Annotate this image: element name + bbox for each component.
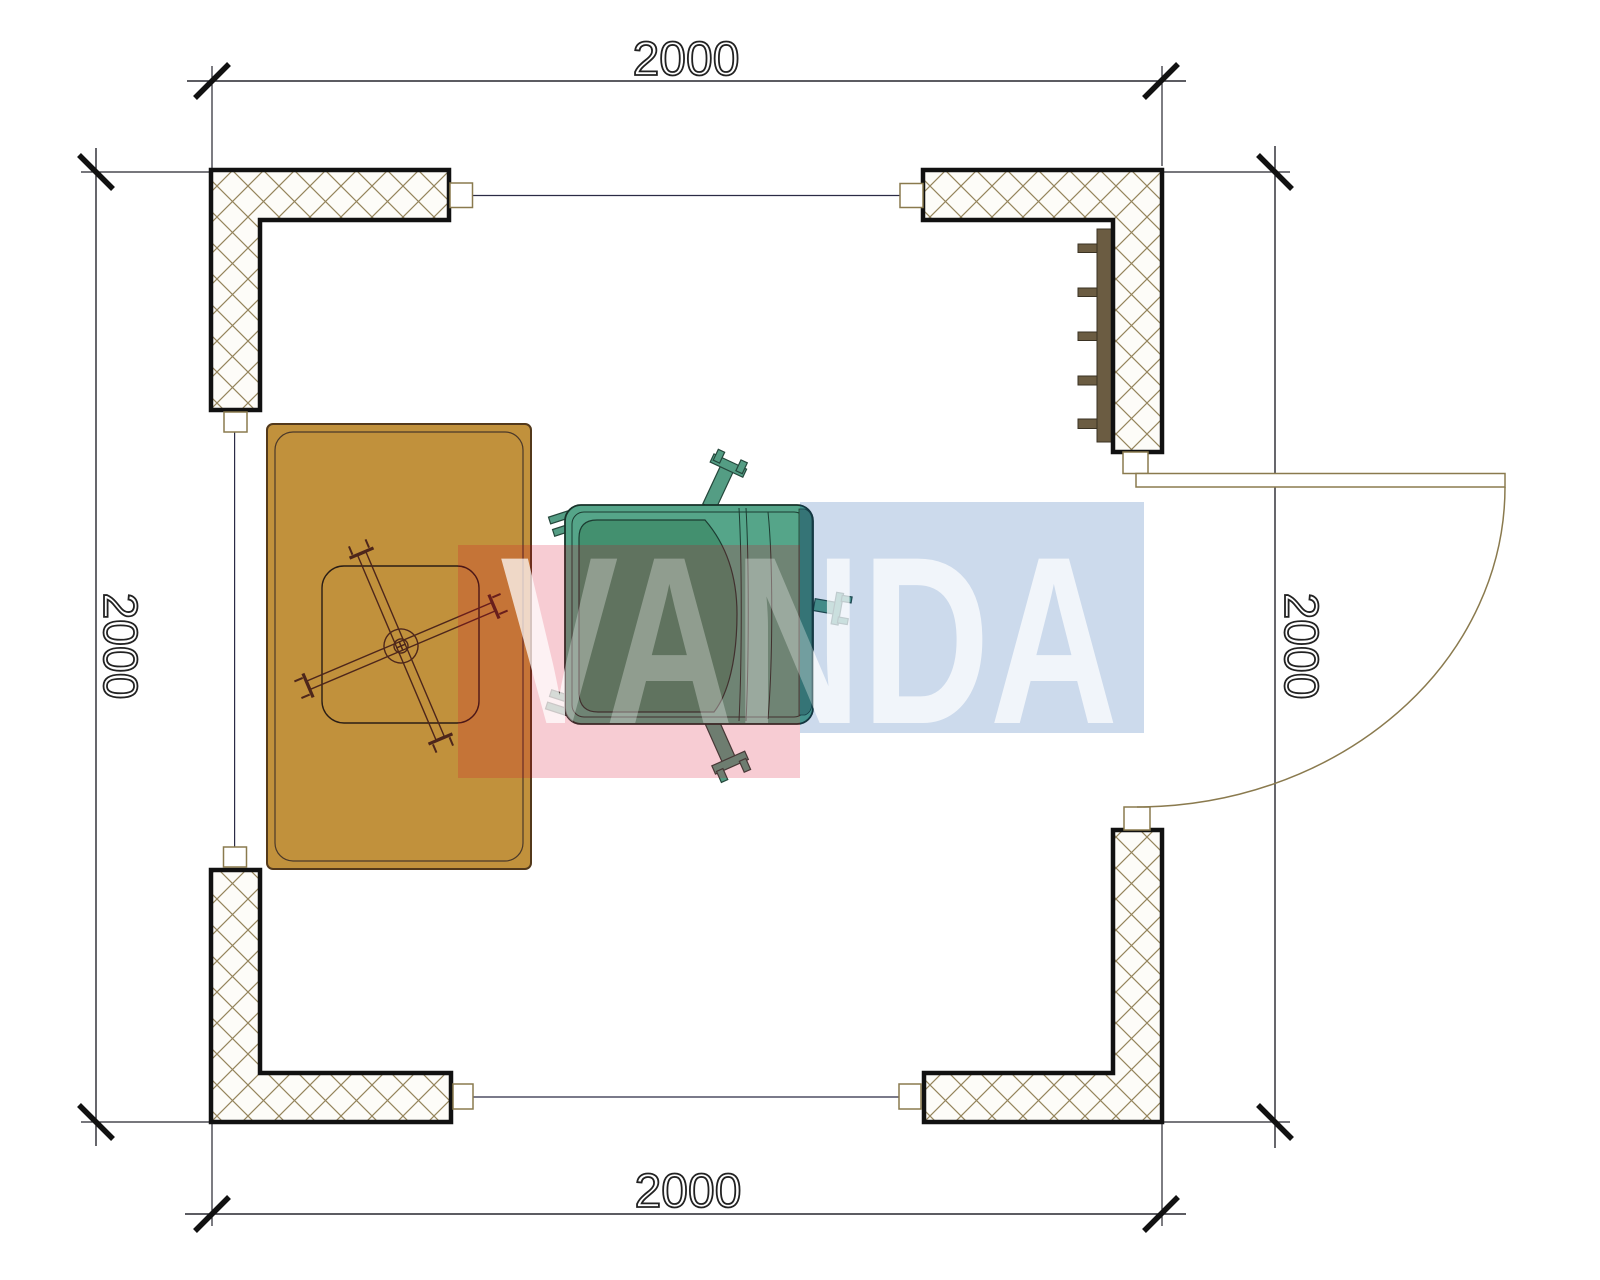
svg-text:2000: 2000 (633, 33, 740, 86)
svg-text:2000: 2000 (1274, 593, 1327, 700)
svg-text:2000: 2000 (635, 1165, 742, 1218)
svg-text:2000: 2000 (93, 593, 146, 700)
